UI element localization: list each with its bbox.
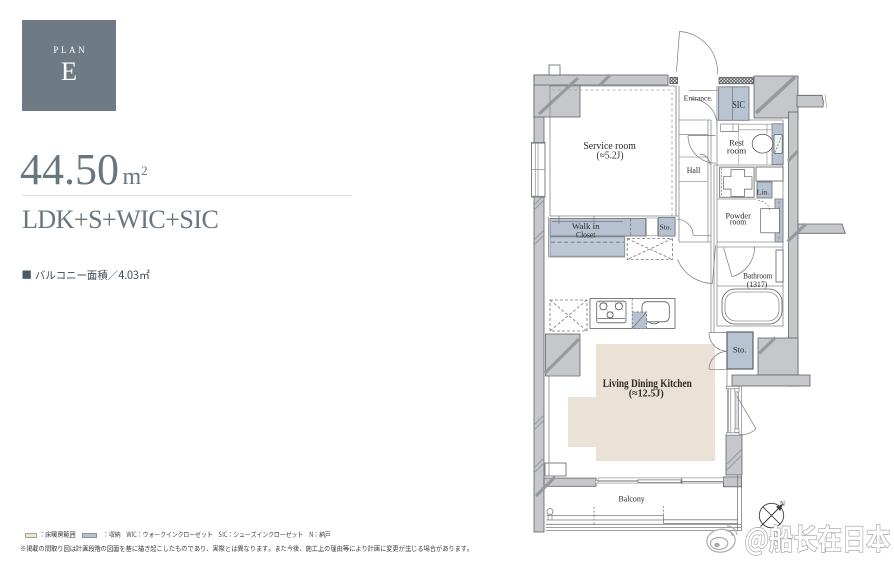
svg-text:SIC: SIC xyxy=(732,100,745,111)
svg-text:Balcony: Balcony xyxy=(618,494,644,503)
svg-text:room: room xyxy=(730,218,747,227)
svg-text:@船长在日本: @船长在日本 xyxy=(745,517,891,559)
svg-text:(≈5.2J): (≈5.2J) xyxy=(597,151,624,162)
svg-text:Closet: Closet xyxy=(576,231,596,240)
svg-text:Hall: Hall xyxy=(687,166,701,175)
svg-text:Lin.: Lin. xyxy=(757,188,770,196)
svg-text:room: room xyxy=(727,146,747,155)
svg-text:Entrance.: Entrance. xyxy=(684,94,713,102)
svg-text:Sto.: Sto. xyxy=(733,346,747,355)
svg-text:(1317): (1317) xyxy=(747,279,768,289)
svg-text:Sto.: Sto. xyxy=(660,224,672,232)
svg-text:(≈12.5J): (≈12.5J) xyxy=(629,388,664,399)
